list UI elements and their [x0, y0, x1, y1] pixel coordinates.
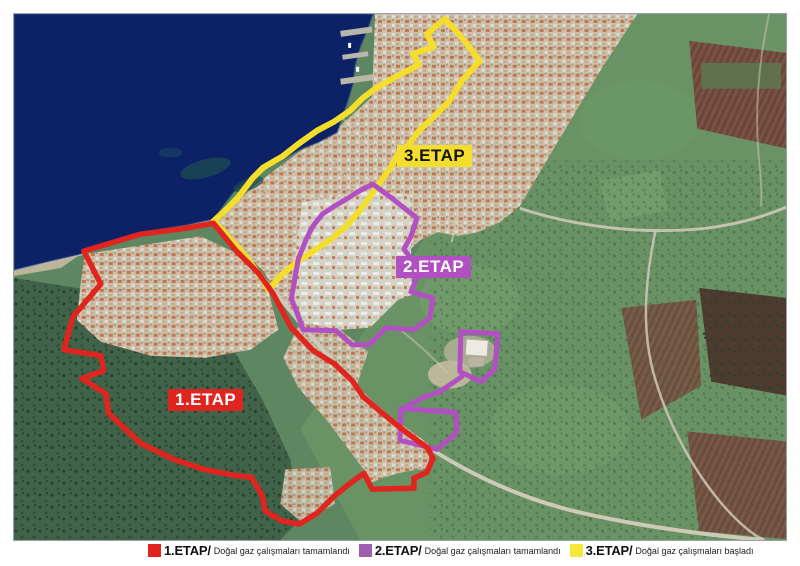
legend-item-etap2: 2.ETAP/ Doğal gaz çalışmaları tamamlandı [359, 543, 561, 558]
legend-desc-etap3: Doğal gaz çalışmaları başladı [635, 545, 753, 556]
legend-desc-etap1: Doğal gaz çalışmaları tamamlandı [214, 545, 350, 556]
etap2-label: 2.ETAP [396, 256, 471, 278]
legend-label-etap3: 3.ETAP/ [586, 543, 633, 558]
legend-label-etap1: 1.ETAP/ [164, 543, 211, 558]
legend: 1.ETAP/ Doğal gaz çalışmaları tamamlandı… [148, 542, 753, 558]
etap2-swatch-icon [359, 544, 372, 557]
etap1-swatch-icon [148, 544, 161, 557]
legend-desc-etap2: Doğal gaz çalışmaları tamamlandı [425, 545, 561, 556]
etap1-label: 1.ETAP [168, 389, 243, 411]
legend-item-etap3: 3.ETAP/ Doğal gaz çalışmaları başladı [570, 543, 754, 558]
legend-item-etap1: 1.ETAP/ Doğal gaz çalışmaları tamamlandı [148, 543, 350, 558]
etap3-swatch-icon [570, 544, 583, 557]
legend-label-etap2: 2.ETAP/ [375, 543, 422, 558]
etap3-label: 3.ETAP [397, 145, 472, 167]
